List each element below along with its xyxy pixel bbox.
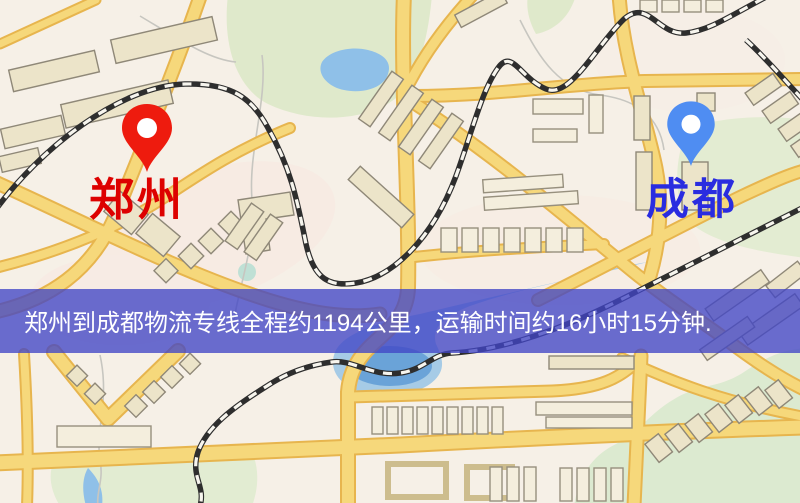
origin-label: 郑州 <box>89 175 185 225</box>
destination-label: 成都 <box>646 176 738 224</box>
banner-text: 郑州到成都物流专线全程约1194公里，运输时间约16小时15分钟. <box>24 310 712 337</box>
map-canvas: 郑州到成都物流专线全程约1194公里，运输时间约16小时15分钟. 郑州 成都 <box>0 0 800 503</box>
route-info-banner: 郑州到成都物流专线全程约1194公里，运输时间约16小时15分钟. <box>0 289 800 353</box>
pin-hole <box>137 118 157 138</box>
pin-hole <box>682 115 701 134</box>
map-screenshot: 郑州到成都物流专线全程约1194公里，运输时间约16小时15分钟. 郑州 成都 <box>0 0 800 503</box>
